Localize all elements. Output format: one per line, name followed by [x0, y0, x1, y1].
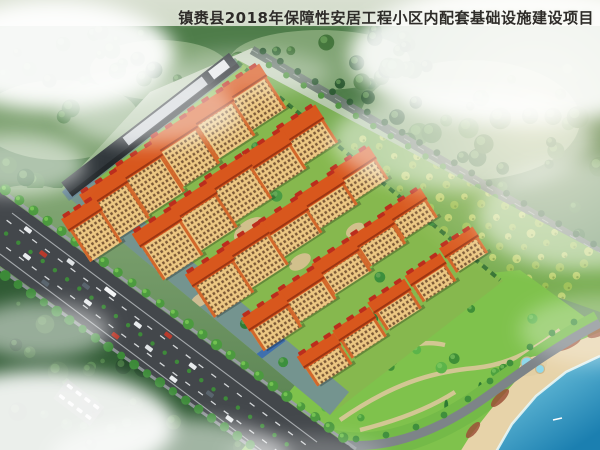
project-title: 镇赉县2018年保障性安居工程小区内配套基础设施建设项目 [178, 7, 594, 28]
masterplan-rendering: 镇赉县2018年保障性安居工程小区内配套基础设施建设项目 [0, 0, 600, 450]
rendering-scene [0, 0, 600, 450]
